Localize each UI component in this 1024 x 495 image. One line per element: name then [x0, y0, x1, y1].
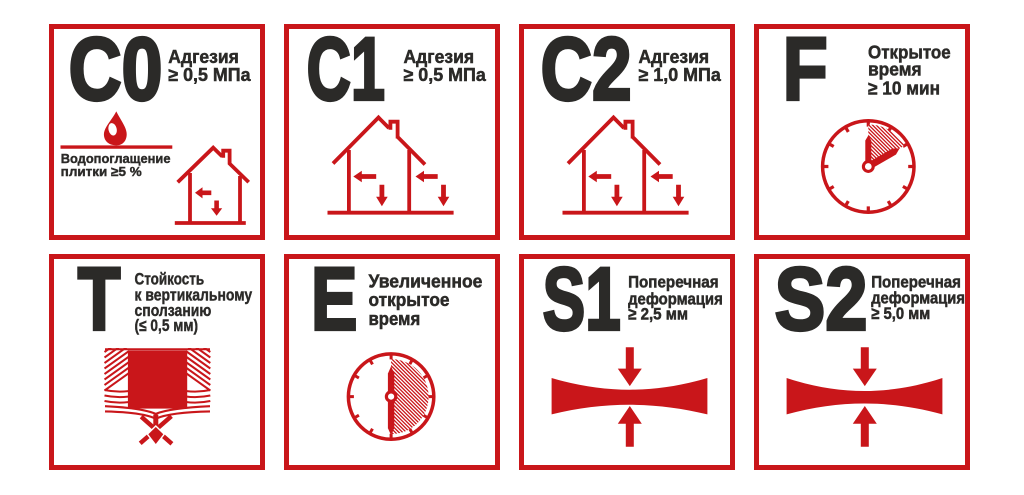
- svg-text:C1: C1: [307, 24, 385, 119]
- svg-text:плитки ≥5 %: плитки ≥5 %: [61, 164, 142, 179]
- svg-text:Поперечная: Поперечная: [628, 272, 719, 291]
- svg-text:T: T: [78, 254, 121, 349]
- svg-text:C2: C2: [541, 24, 632, 119]
- svg-text:S1: S1: [543, 254, 621, 349]
- svg-text:открытое: открытое: [369, 289, 450, 310]
- svg-text:C0: C0: [69, 24, 163, 119]
- svg-text:F: F: [783, 24, 828, 119]
- svg-text:≥ 0,5 МПа: ≥ 0,5 МПа: [168, 64, 251, 85]
- svg-text:(≤ 0,5 мм): (≤ 0,5 мм): [135, 317, 199, 335]
- svg-text:≥ 5,0 мм: ≥ 5,0 мм: [871, 304, 930, 323]
- svg-text:E: E: [311, 254, 357, 349]
- svg-text:время: время: [868, 58, 922, 79]
- svg-text:≥ 2,5 мм: ≥ 2,5 мм: [628, 305, 688, 324]
- svg-text:≥ 1,0 МПа: ≥ 1,0 МПа: [639, 64, 722, 85]
- svg-text:S2: S2: [775, 254, 868, 349]
- svg-text:время: время: [369, 308, 421, 329]
- svg-text:≥ 10 мин: ≥ 10 мин: [868, 77, 940, 98]
- svg-text:≥ 0,5 МПа: ≥ 0,5 МПа: [404, 64, 487, 85]
